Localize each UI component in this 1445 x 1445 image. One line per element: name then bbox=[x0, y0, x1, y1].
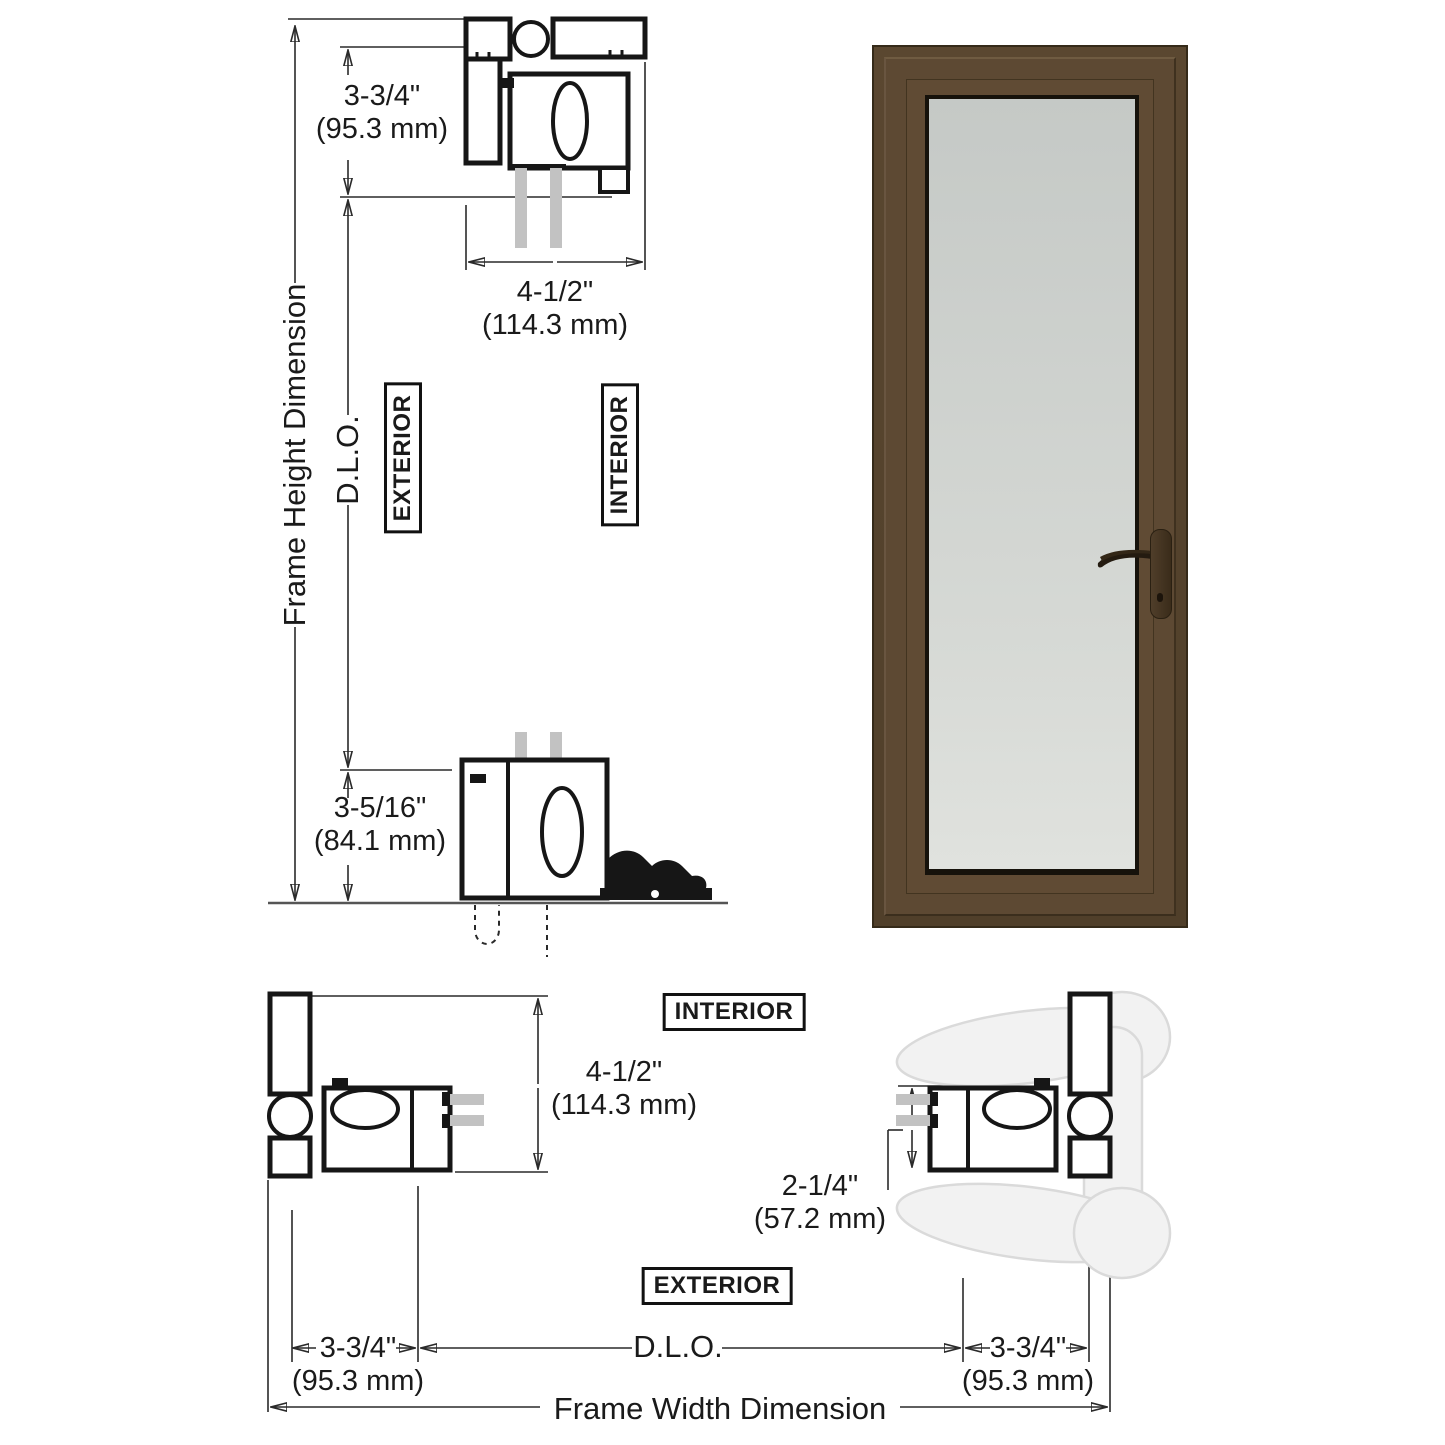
head-drop-metric: (95.3 mm) bbox=[316, 113, 448, 145]
jamb-left-metric: (95.3 mm) bbox=[292, 1365, 424, 1397]
stile-width-metric: (57.2 mm) bbox=[754, 1203, 886, 1235]
exterior-label-top: EXTERIOR bbox=[384, 383, 422, 534]
door-handle-plate bbox=[1150, 529, 1172, 619]
sill-section-drawing bbox=[450, 732, 740, 912]
frame-height-label: Frame Height Dimension bbox=[277, 284, 313, 627]
stile-width-inches: 2-1/4" bbox=[782, 1170, 858, 1202]
door-elevation bbox=[872, 45, 1188, 928]
glazing-gap bbox=[925, 95, 1139, 875]
jamb-depth-inches: 4-1/2" bbox=[586, 1056, 662, 1088]
stile-width-dimension: 2-1/4" (57.2 mm) bbox=[754, 1170, 886, 1236]
jamb-right-inches: 3-3/4" bbox=[990, 1332, 1066, 1364]
sill-height-dimension: 3-5/16" (84.1 mm) bbox=[314, 792, 446, 858]
head-drop-inches: 3-3/4" bbox=[344, 80, 420, 112]
door-glass bbox=[929, 99, 1135, 869]
dlo-horizontal-label: D.L.O. bbox=[633, 1330, 723, 1363]
keyhole-icon bbox=[1157, 593, 1163, 602]
head-depth-metric: (114.3 mm) bbox=[482, 309, 628, 341]
interior-label-top: INTERIOR bbox=[601, 384, 639, 527]
dimension-lines bbox=[0, 0, 1445, 1445]
door-sections-diagram: 3-3/4" (95.3 mm) 4-1/2" (114.3 mm) Frame… bbox=[0, 0, 1445, 1445]
jamb-right-metric: (95.3 mm) bbox=[962, 1365, 1094, 1397]
sill-height-inches: 3-5/16" bbox=[334, 792, 427, 824]
exterior-label-bottom: EXTERIOR bbox=[642, 1267, 793, 1305]
jamb-left-inches: 3-3/4" bbox=[320, 1332, 396, 1364]
hinge-jamb-section-drawing bbox=[262, 988, 484, 1184]
interior-label-bottom: INTERIOR bbox=[663, 993, 806, 1031]
head-depth-dimension: 4-1/2" (114.3 mm) bbox=[482, 276, 628, 342]
head-drop-dimension: 3-3/4" (95.3 mm) bbox=[316, 80, 448, 146]
jamb-depth-metric: (114.3 mm) bbox=[551, 1089, 697, 1121]
head-section-drawing bbox=[452, 8, 662, 256]
lock-jamb-section-drawing bbox=[878, 985, 1220, 1285]
head-depth-inches: 4-1/2" bbox=[517, 276, 593, 308]
sill-height-metric: (84.1 mm) bbox=[314, 825, 446, 857]
frame-width-label: Frame Width Dimension bbox=[554, 1392, 886, 1425]
jamb-right-dimension: 3-3/4" (95.3 mm) bbox=[962, 1332, 1094, 1398]
dlo-vertical-label: D.L.O. bbox=[330, 415, 366, 505]
jamb-left-dimension: 3-3/4" (95.3 mm) bbox=[292, 1332, 424, 1398]
jamb-depth-dimension: 4-1/2" (114.3 mm) bbox=[551, 1056, 697, 1122]
